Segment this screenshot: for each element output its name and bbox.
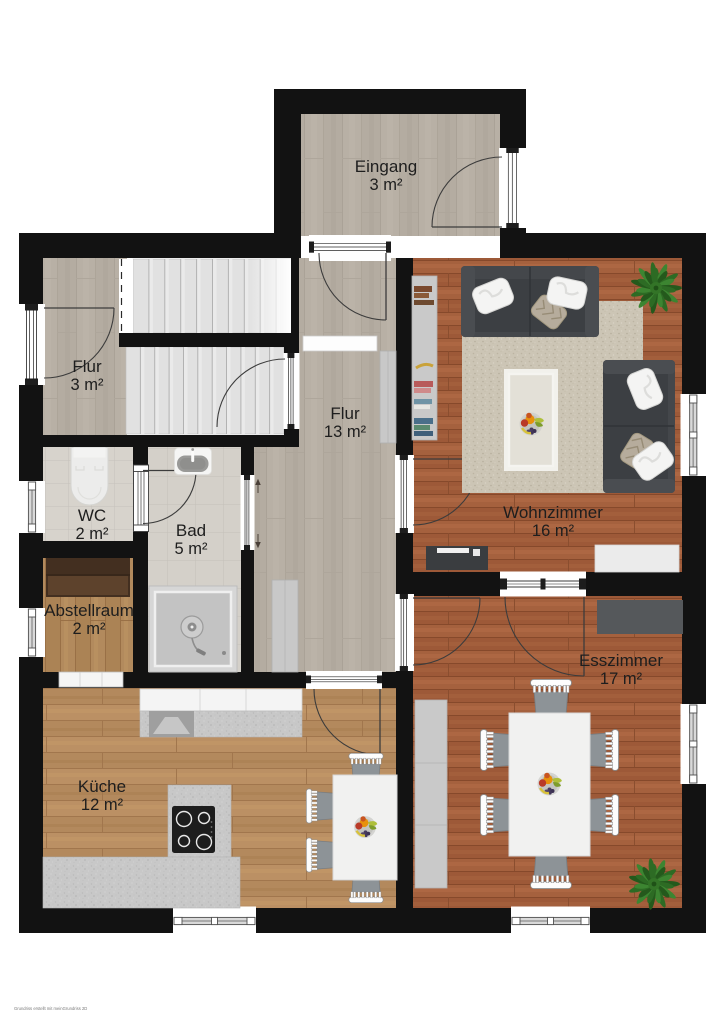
svg-text:Flur: Flur: [330, 404, 360, 423]
svg-text:Flur: Flur: [72, 357, 102, 376]
svg-text:Bad: Bad: [176, 521, 206, 540]
svg-text:Küche: Küche: [78, 777, 126, 796]
svg-text:WC: WC: [78, 506, 106, 525]
svg-text:Grundriss erstellt mit meinGru: Grundriss erstellt mit meinGrundriss 2D: [14, 1006, 87, 1011]
svg-text:2 m²: 2 m²: [73, 620, 107, 638]
svg-text:3 m²: 3 m²: [370, 176, 404, 194]
svg-text:Wohnzimmer: Wohnzimmer: [503, 503, 603, 522]
svg-text:16 m²: 16 m²: [532, 522, 575, 540]
svg-text:17 m²: 17 m²: [600, 670, 643, 688]
svg-text:5 m²: 5 m²: [175, 540, 209, 558]
svg-text:12 m²: 12 m²: [81, 796, 124, 814]
svg-text:3 m²: 3 m²: [71, 376, 105, 394]
svg-text:Eingang: Eingang: [355, 157, 417, 176]
svg-text:13 m²: 13 m²: [324, 423, 367, 441]
svg-text:Abstellraum: Abstellraum: [44, 601, 134, 620]
svg-text:2 m²: 2 m²: [76, 525, 110, 543]
svg-text:Esszimmer: Esszimmer: [579, 651, 663, 670]
